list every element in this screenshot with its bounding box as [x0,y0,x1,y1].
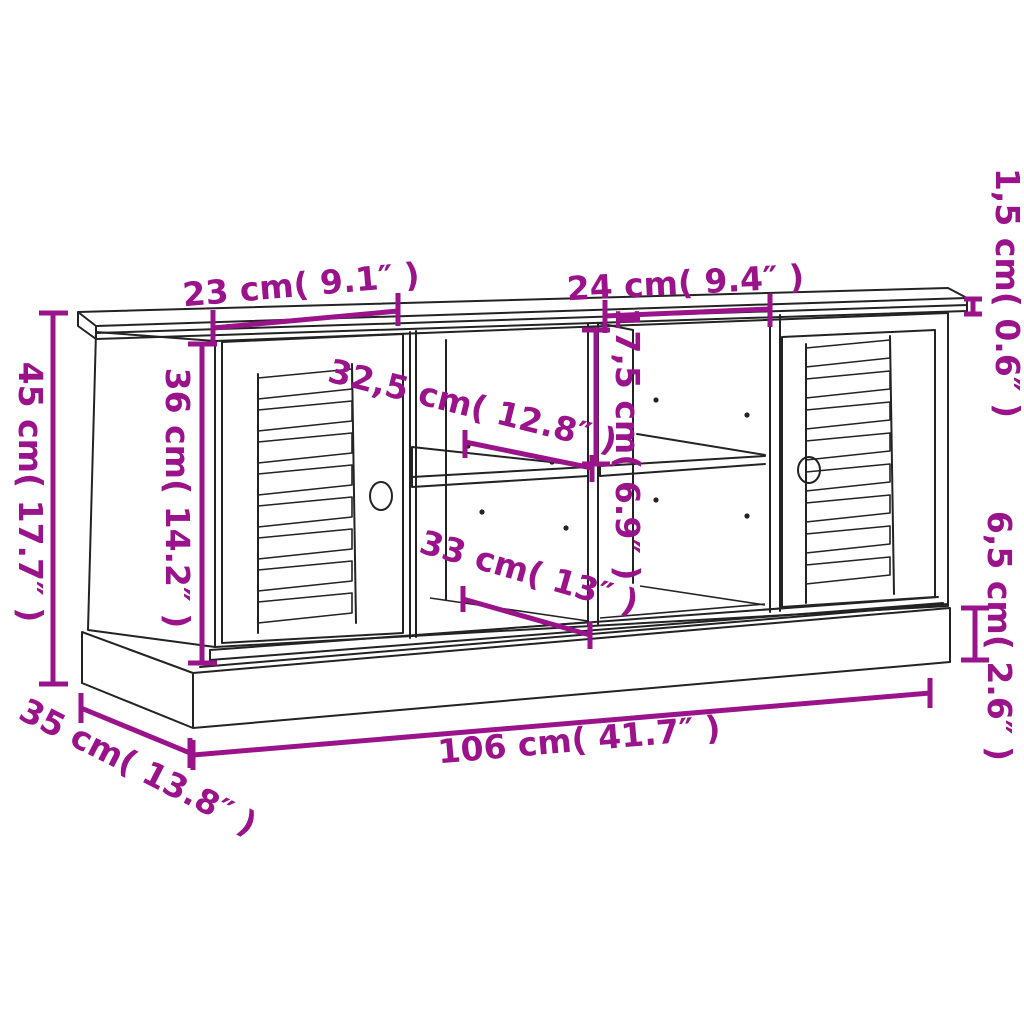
dimension-plinth-height: 6,5 cm( 2.6″ ) [961,511,1019,761]
middle-shelf-left [412,447,588,487]
dimension-overall-height: 45 cm( 17.7″ ) [11,313,68,684]
pin-hole [653,397,658,402]
dimension-inner-height: 36 cm( 14.2″ ) [158,344,217,663]
dimension-label: 36 cm( 14.2″ ) [158,368,197,629]
dimension-overall-width: 106 cm( 41.7″ ) [193,678,930,771]
dimension-diagram-canvas: 23 cm( 9.1″ ) 24 cm( 9.4″ ) 1,5 cm( 0.6″… [0,0,1024,1024]
left-door-louvers [258,369,352,623]
furniture-dimension-diagram: 23 cm( 9.1″ ) 24 cm( 9.4″ ) 1,5 cm( 0.6″… [0,0,1024,1024]
dimension-label: 6,5 cm( 2.6″ ) [980,511,1019,761]
dimension-shelf-depth: 32,5 cm( 12.8″ ) [324,351,621,482]
dimension-label: 35 cm( 13.8″ ) [13,690,263,843]
pin-hole [479,509,484,514]
dimension-label: 106 cm( 41.7″ ) [436,708,722,772]
dimension-top-panel-thickness: 1,5 cm( 0.6″ ) [964,168,1024,418]
pin-hole [744,513,749,518]
pin-hole [744,412,749,417]
right-door-frame [782,330,935,607]
plinth-base [82,604,950,728]
dimension-overall-depth: 35 cm( 13.8″ ) [13,690,263,843]
dimension-label: 17,5 cm( 6.9″ ) [608,307,647,580]
right-door-knob [798,457,820,483]
pin-hole [563,525,568,530]
pin-hole [653,497,658,502]
compartment-right-wall [770,315,780,612]
left-door-knob [370,482,392,510]
dimension-label: 1,5 cm( 0.6″ ) [988,168,1024,418]
dimension-right-compartment-width: 24 cm( 9.4″ ) [566,257,805,333]
bottom-board [210,597,943,660]
dimension-annotations: 23 cm( 9.1″ ) 24 cm( 9.4″ ) 1,5 cm( 0.6″… [11,168,1024,843]
dimension-label: 45 cm( 17.7″ ) [11,362,50,623]
